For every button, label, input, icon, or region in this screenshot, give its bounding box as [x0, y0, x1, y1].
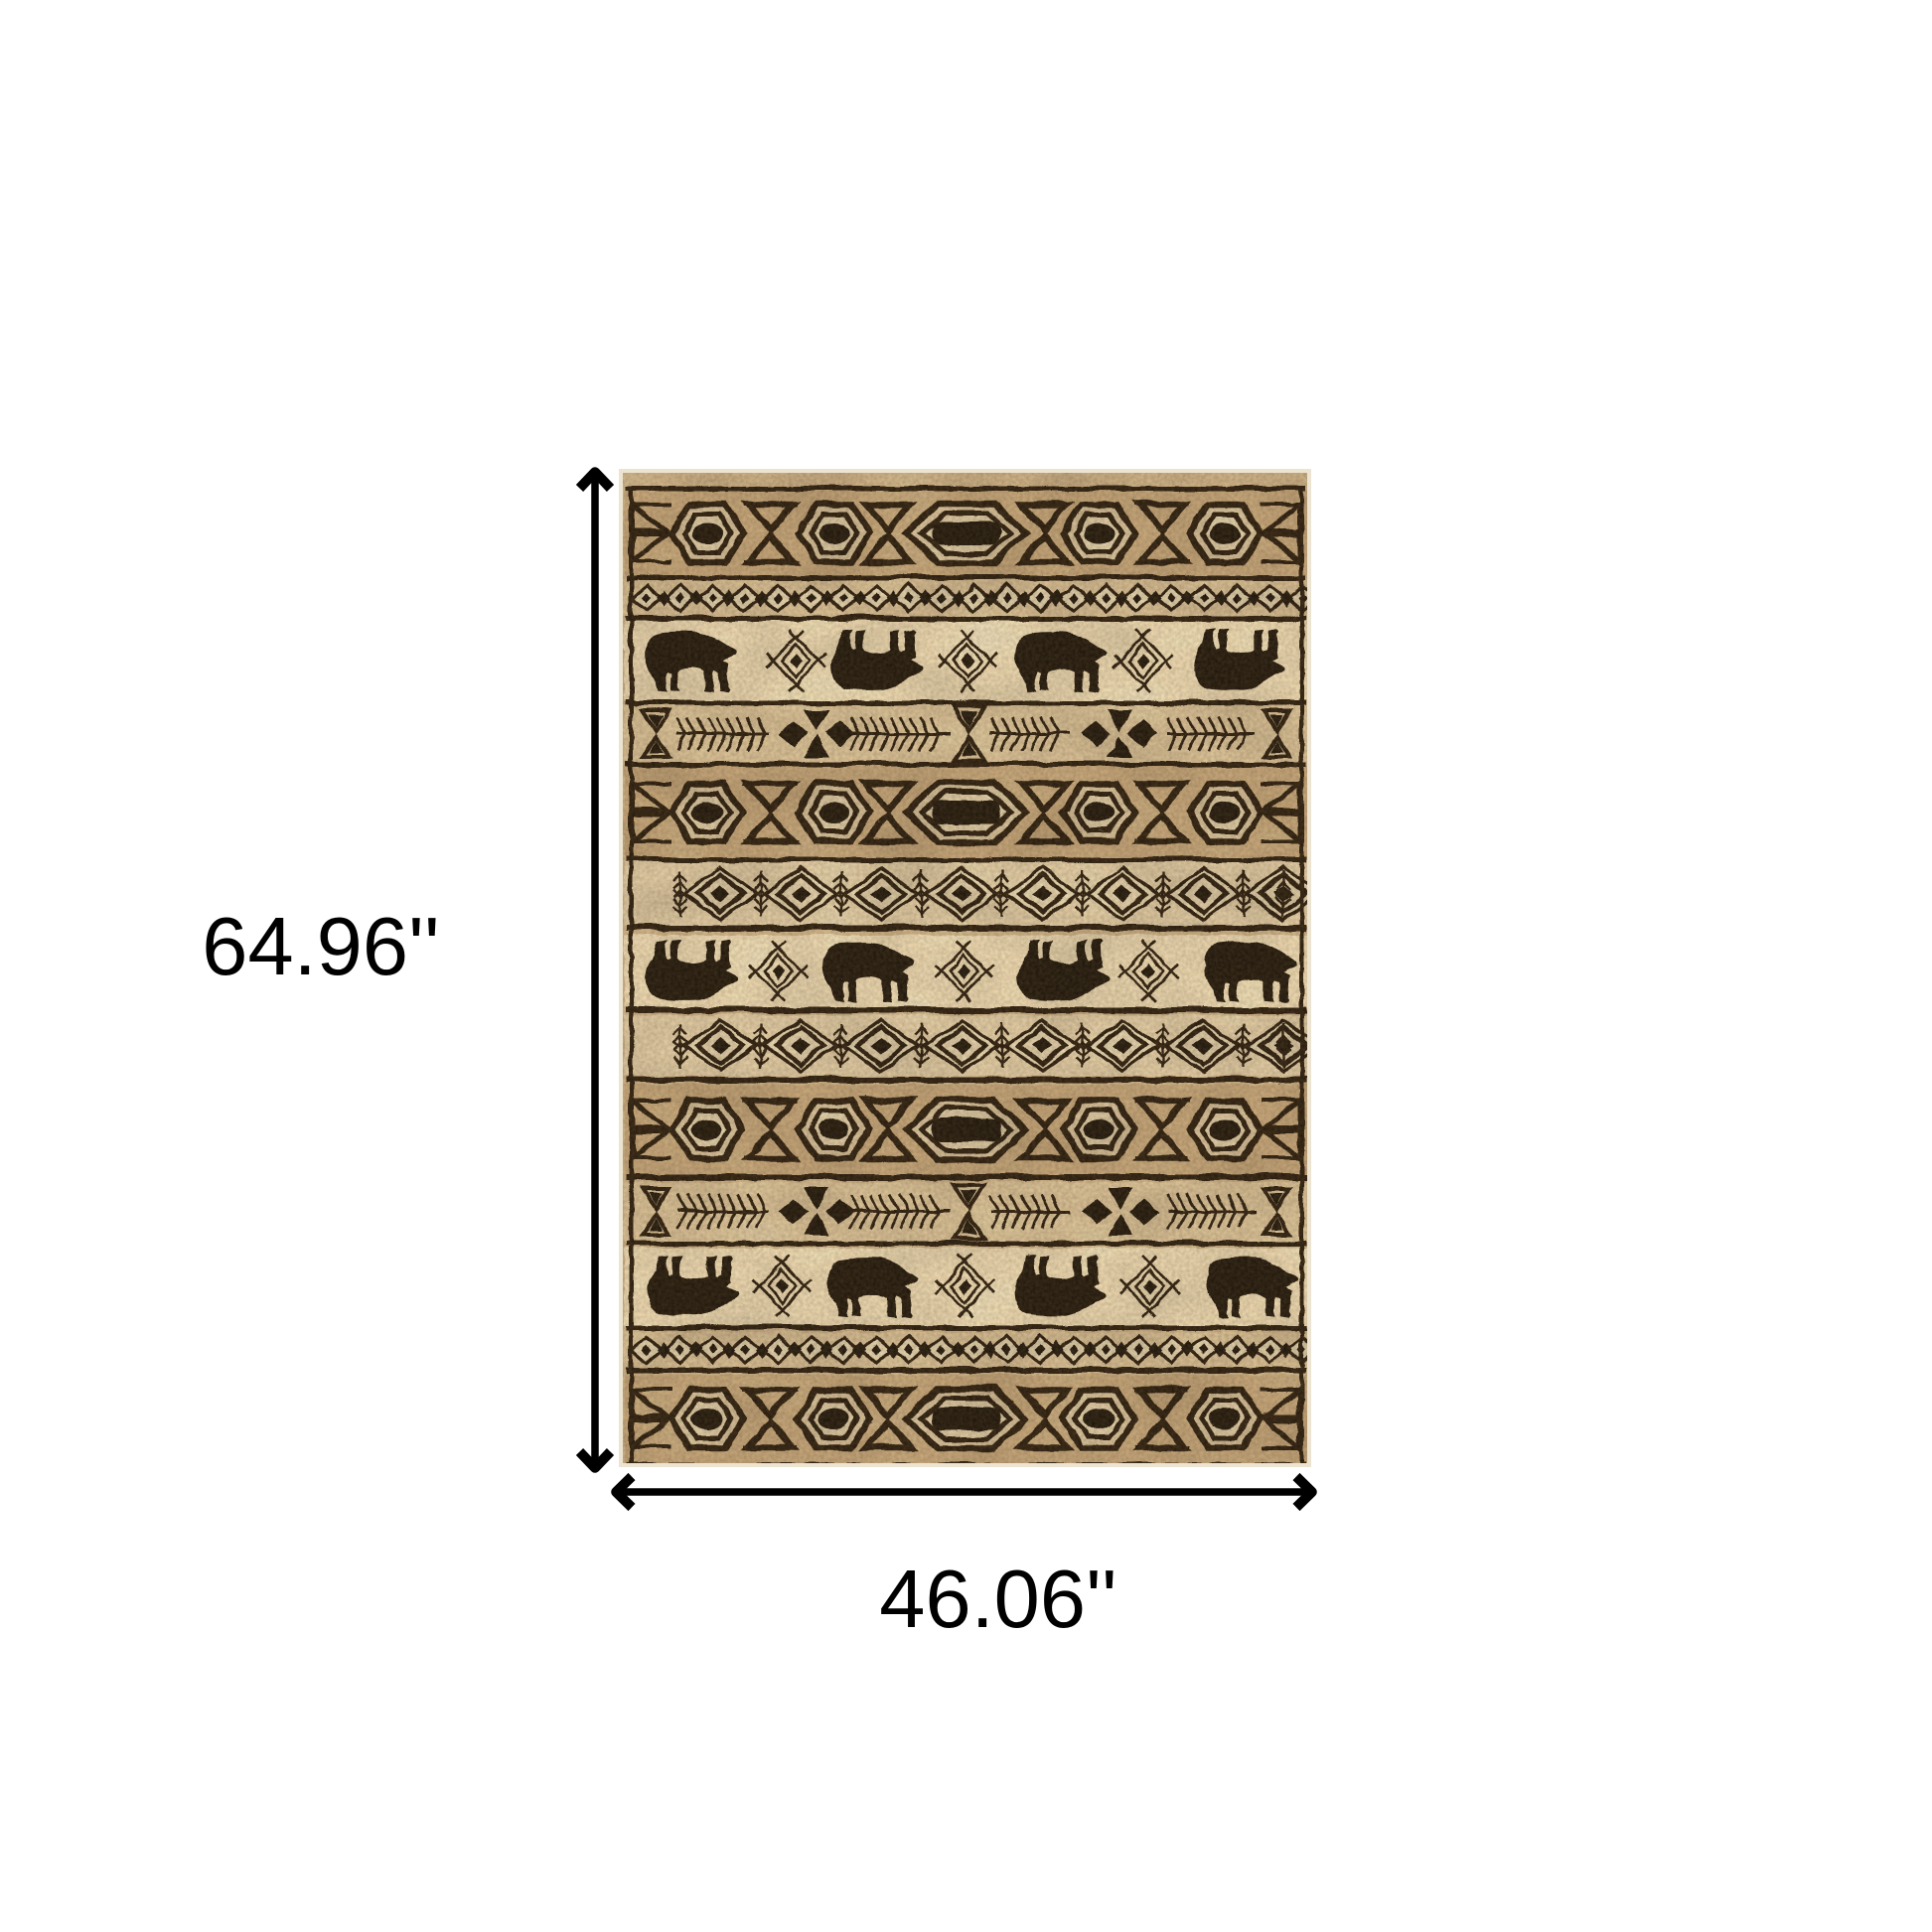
svg-text:64.96'': 64.96''	[202, 900, 439, 992]
svg-text:46.06'': 46.06''	[879, 1553, 1116, 1645]
